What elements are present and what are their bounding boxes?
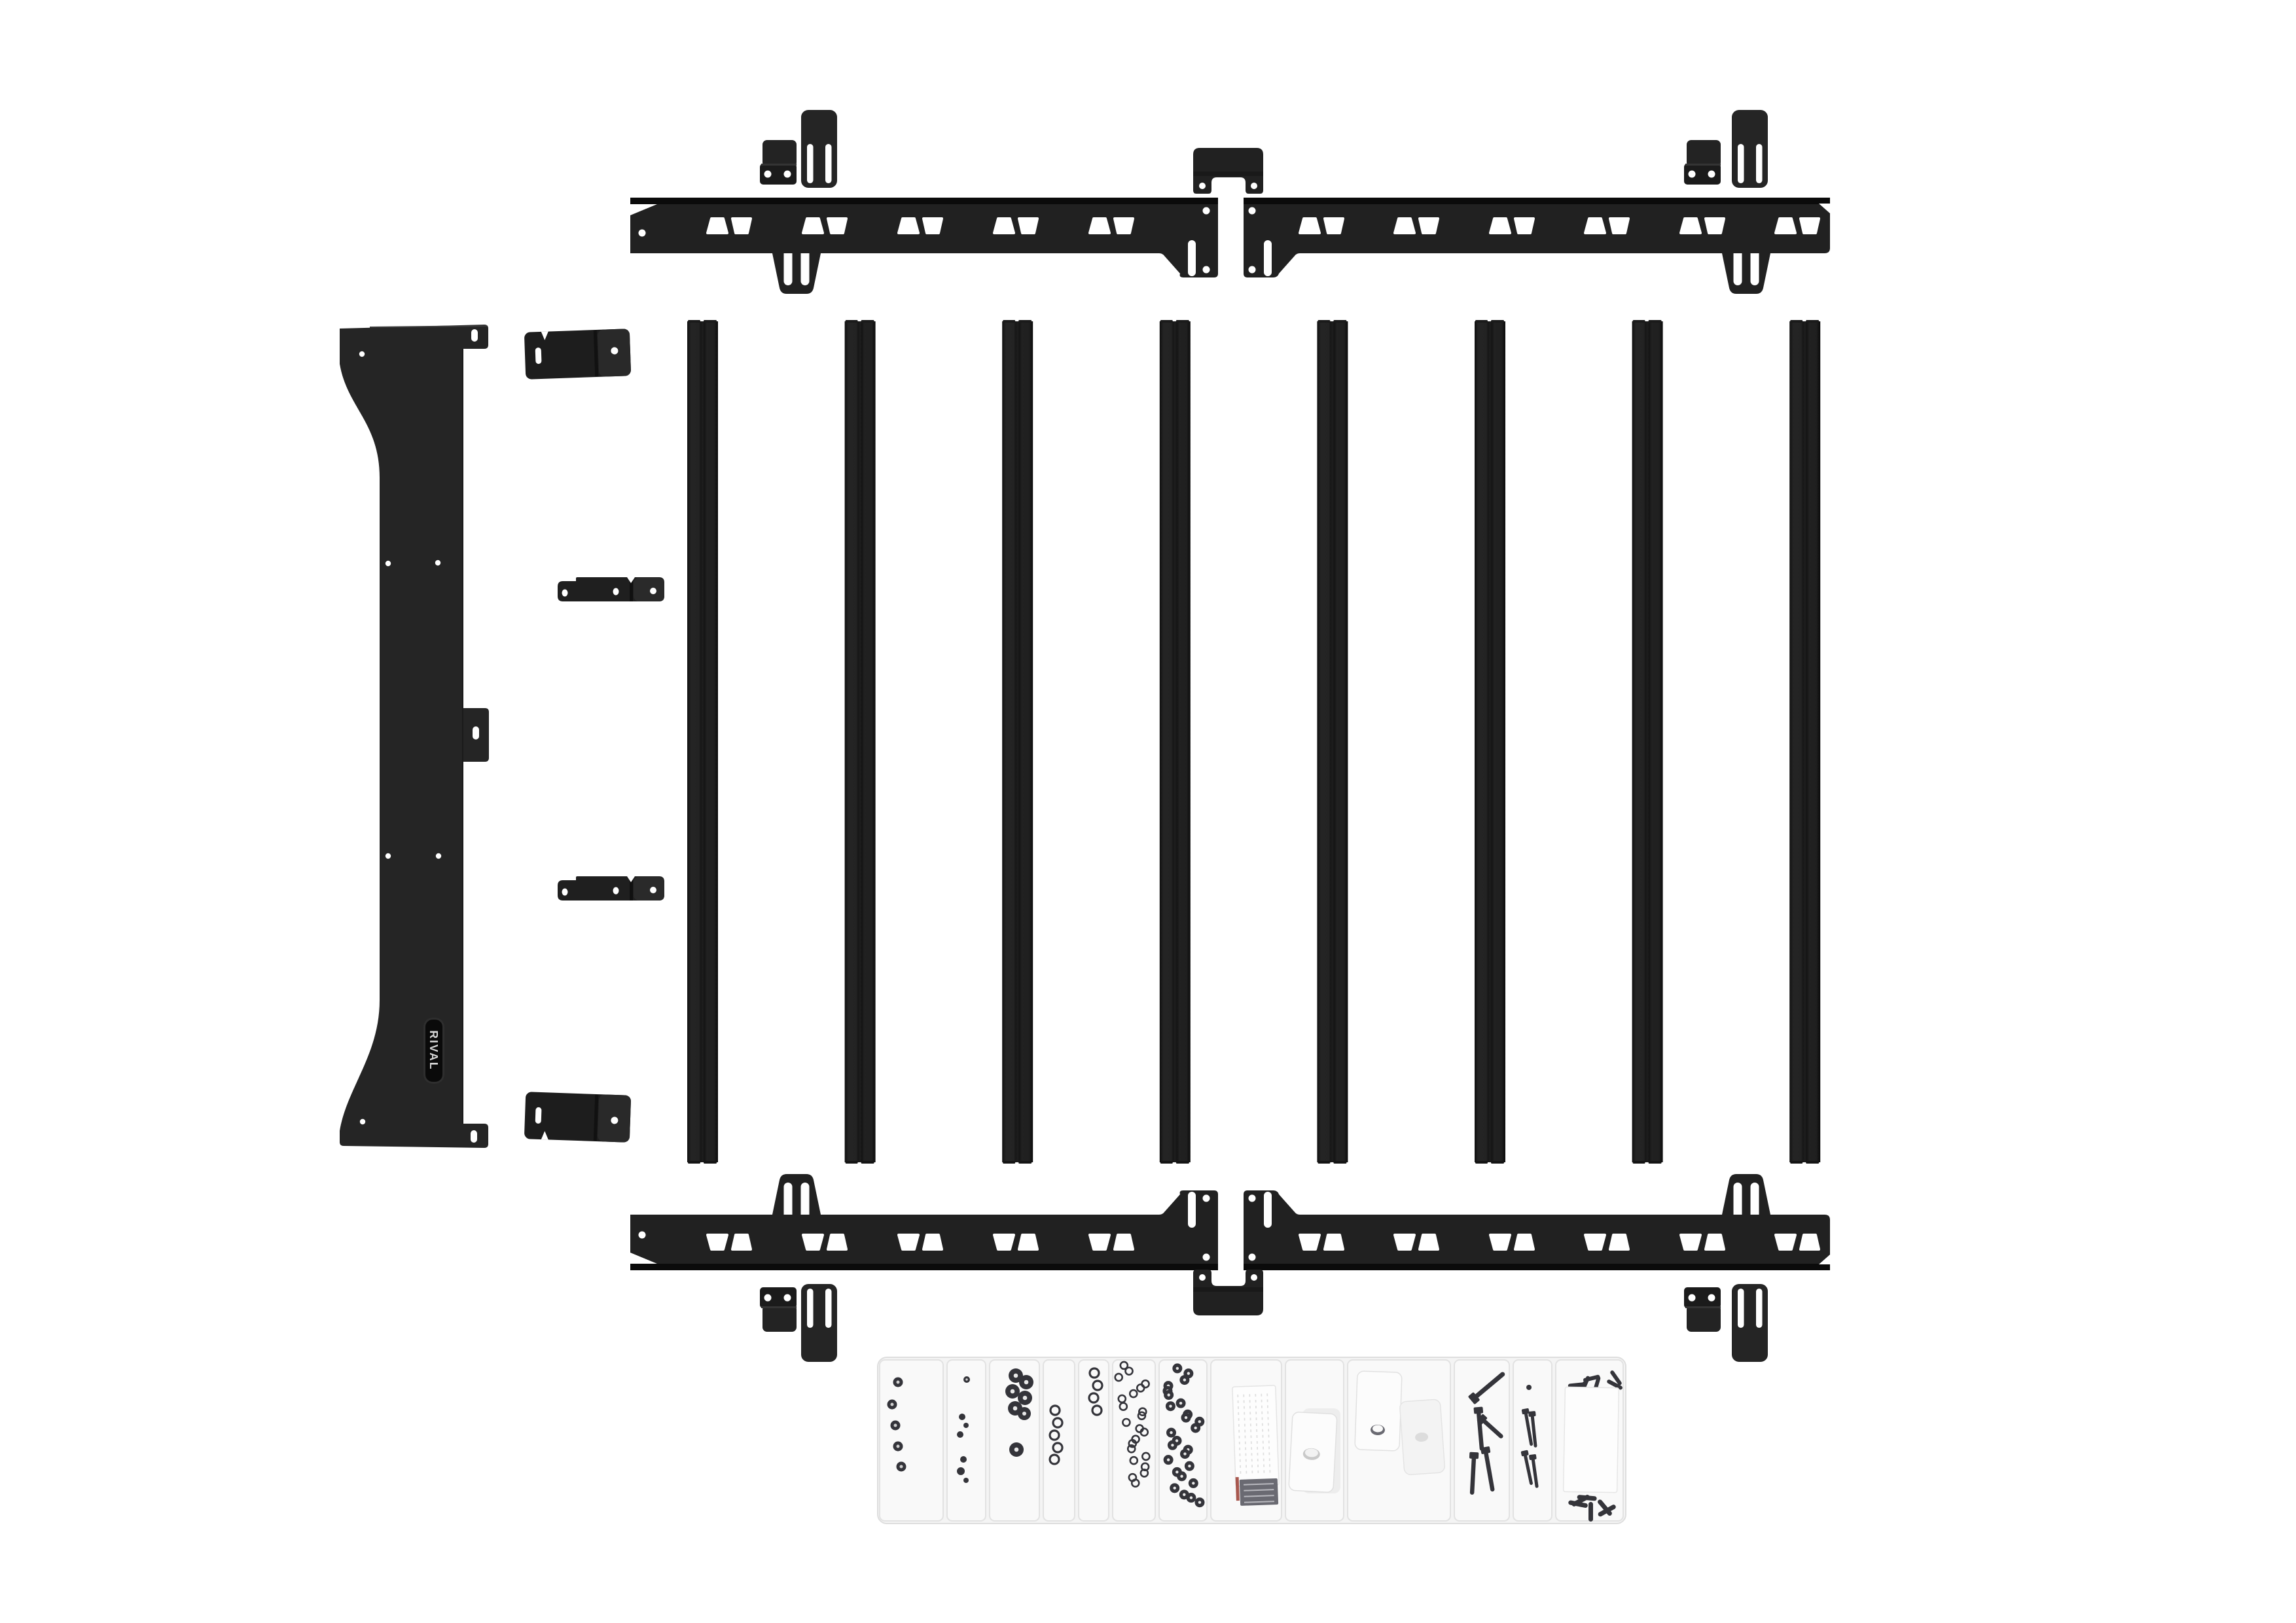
svg-text:RIVAL: RIVAL: [427, 1030, 440, 1070]
